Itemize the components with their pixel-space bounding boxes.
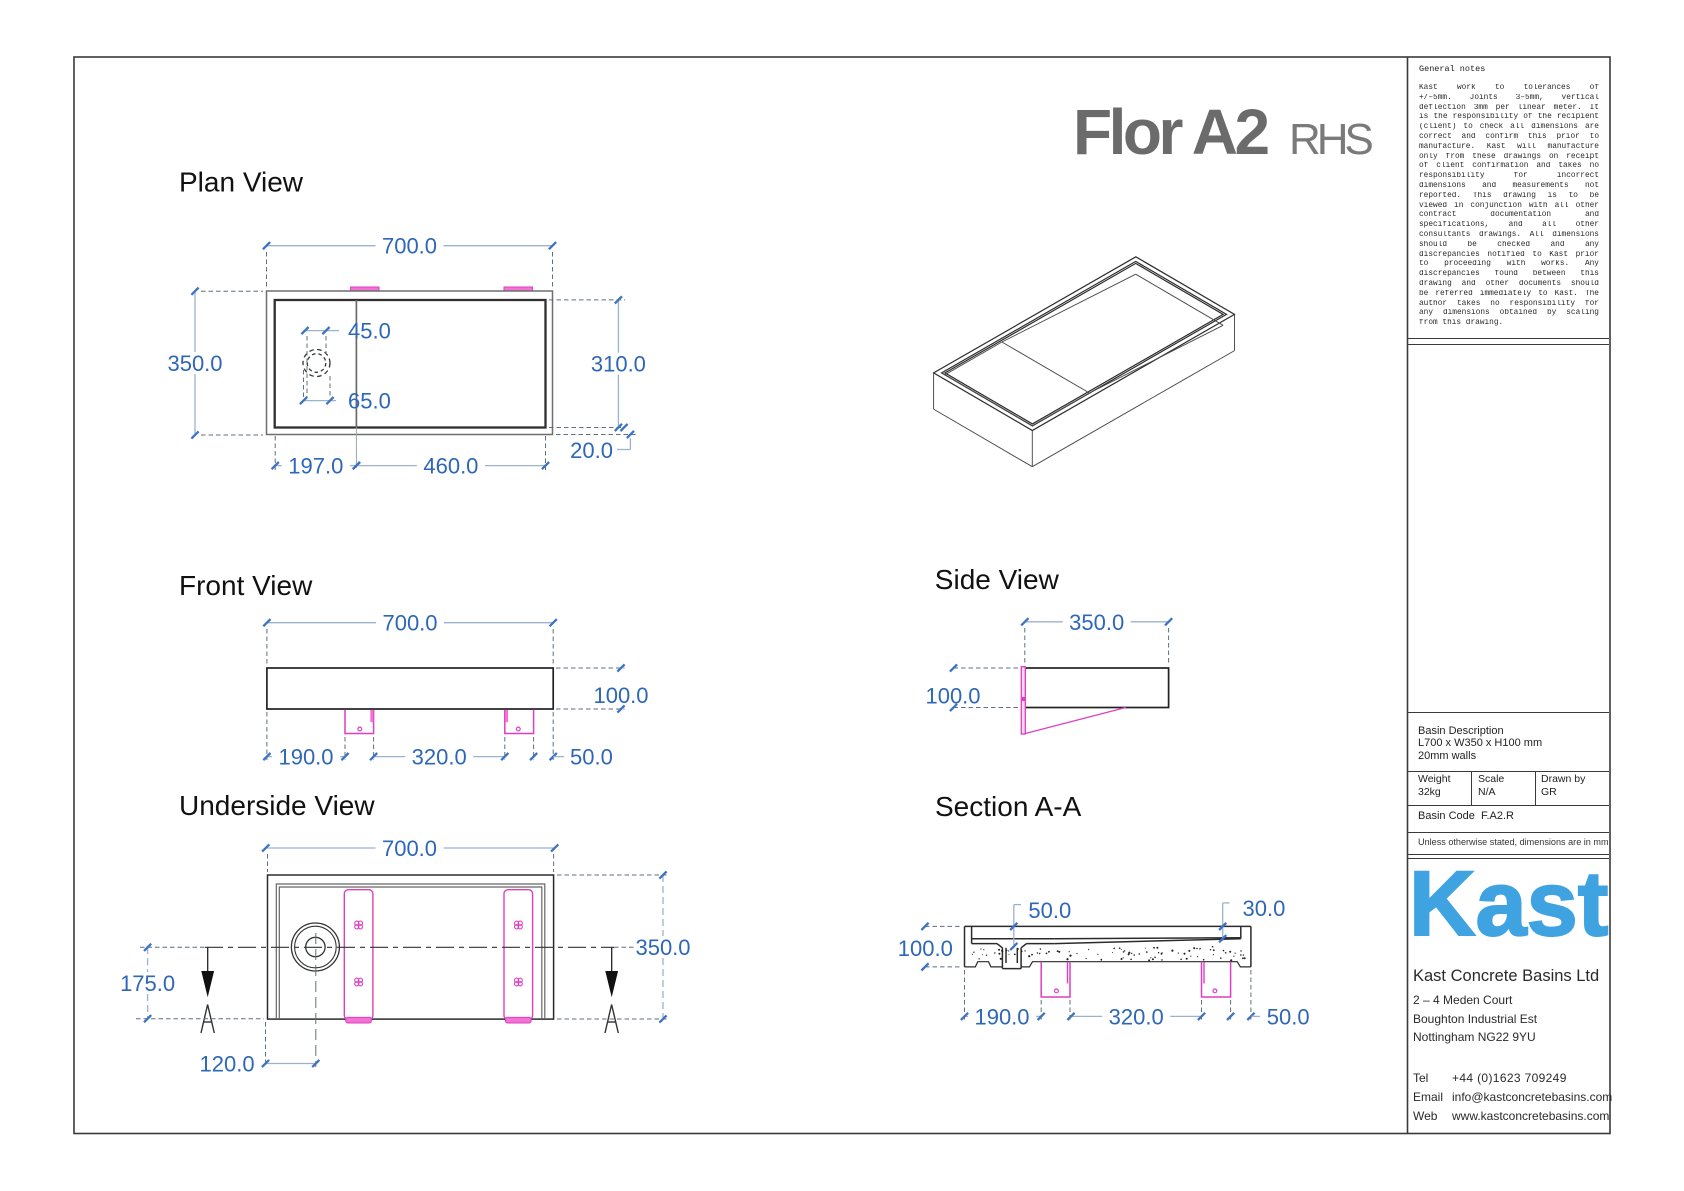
svg-text:20.0: 20.0 (570, 438, 613, 463)
svg-text:120.0: 120.0 (200, 1052, 255, 1077)
svg-text:50.0: 50.0 (570, 744, 613, 769)
svg-text:RHS: RHS (1289, 115, 1373, 164)
svg-text:30.0: 30.0 (1243, 896, 1286, 921)
svg-text:Section A-A: Section A-A (935, 791, 1082, 822)
svg-text:65.0: 65.0 (348, 389, 391, 414)
svg-text:190.0: 190.0 (278, 745, 333, 770)
svg-text:350.0: 350.0 (635, 935, 690, 960)
svg-text:350.0: 350.0 (167, 351, 222, 376)
svg-text:350.0: 350.0 (1069, 610, 1124, 635)
svg-text:50.0: 50.0 (1028, 898, 1071, 923)
svg-text:Front View: Front View (179, 570, 313, 601)
svg-text:700.0: 700.0 (382, 234, 437, 259)
svg-text:190.0: 190.0 (974, 1004, 1029, 1029)
svg-text:Side View: Side View (935, 564, 1060, 595)
svg-text:197.0: 197.0 (288, 454, 343, 479)
svg-text:Underside View: Underside View (179, 790, 375, 821)
svg-text:45.0: 45.0 (348, 319, 391, 344)
svg-text:Flor A2: Flor A2 (1073, 96, 1269, 168)
svg-text:700.0: 700.0 (382, 836, 437, 861)
svg-text:50.0: 50.0 (1267, 1004, 1310, 1029)
svg-text:100.0: 100.0 (593, 683, 648, 708)
svg-text:100.0: 100.0 (925, 684, 980, 709)
svg-text:100.0: 100.0 (898, 936, 953, 961)
svg-text:Plan View: Plan View (179, 166, 304, 197)
svg-text:700.0: 700.0 (382, 611, 437, 636)
svg-text:310.0: 310.0 (591, 352, 646, 377)
svg-text:460.0: 460.0 (423, 454, 478, 479)
svg-text:320.0: 320.0 (412, 745, 467, 770)
svg-text:320.0: 320.0 (1109, 1004, 1164, 1029)
svg-text:175.0: 175.0 (120, 971, 175, 996)
